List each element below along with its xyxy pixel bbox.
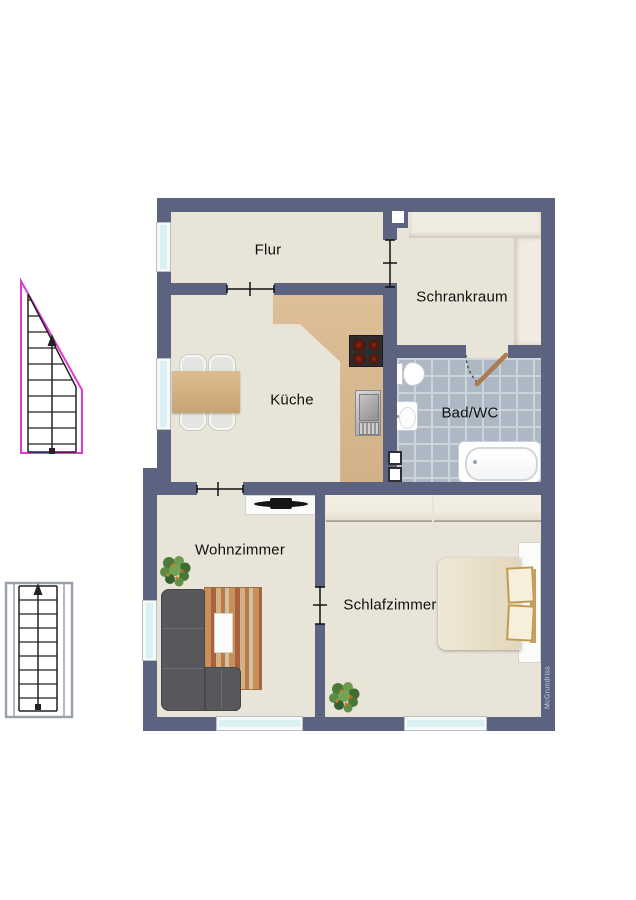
- plant-schlafzimmer: [329, 682, 360, 713]
- room-label-bad-wc: Bad/WC: [441, 405, 498, 422]
- tv-icon: [254, 498, 308, 509]
- floorplan-page: Flur Schrankraum Küche Bad/WC Wohnzimmer…: [0, 0, 636, 900]
- room-label-flur: Flur: [255, 242, 282, 259]
- room-label-schrankraum: Schrankraum: [416, 289, 507, 306]
- watermark: McGrundriss: [541, 652, 555, 724]
- door-wohnzimmer-schlafzimmer: [313, 587, 327, 624]
- door-flur-kueche: [227, 282, 274, 296]
- plan-overlay: [0, 0, 636, 900]
- room-label-schlafzimmer: Schlafzimmer: [343, 597, 436, 614]
- room-label-kueche: Küche: [270, 392, 314, 409]
- staircase-upper-diagram: [21, 281, 82, 454]
- door-flur-schrankraum: [383, 240, 397, 287]
- plant-wohnzimmer: [160, 556, 191, 587]
- door-kueche-wohnzimmer: [197, 482, 243, 496]
- staircase-lower-diagram: [6, 583, 72, 717]
- room-label-wohnzimmer: Wohnzimmer: [195, 542, 285, 559]
- door-bad: [466, 355, 506, 384]
